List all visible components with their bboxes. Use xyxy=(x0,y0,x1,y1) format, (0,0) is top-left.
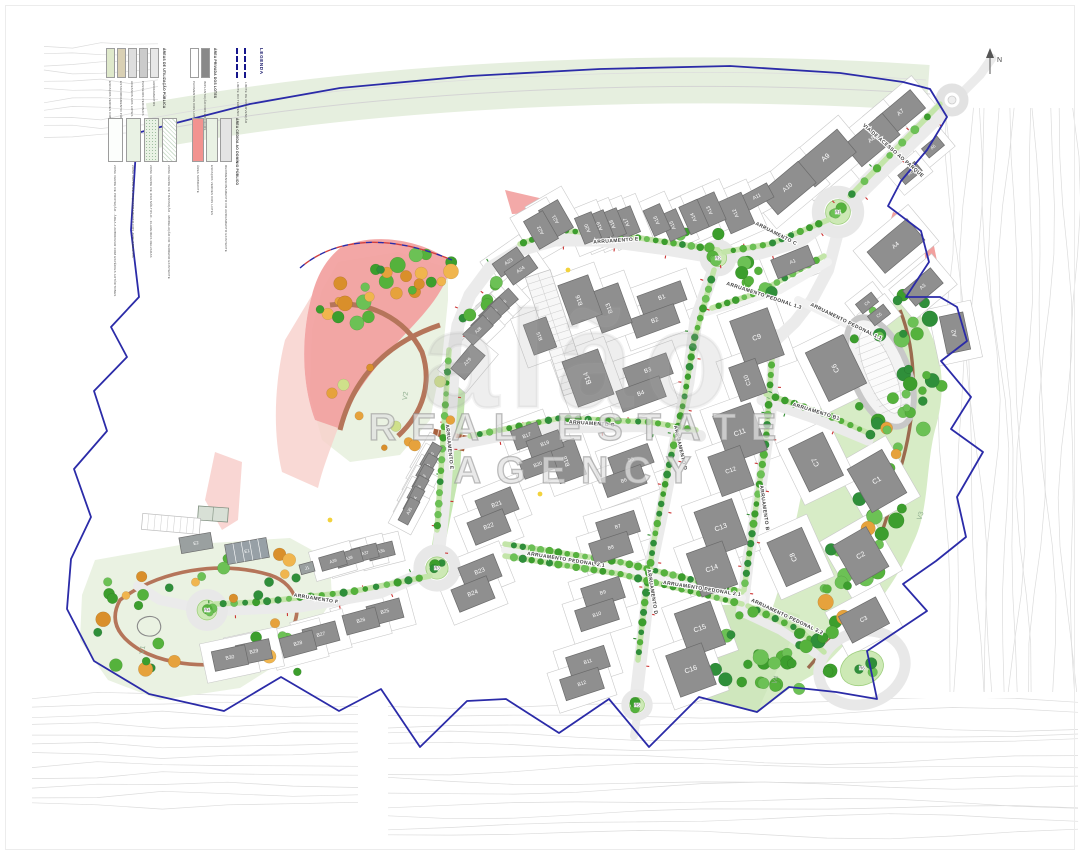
legend-boundary-label: LIMITE DO TERRENO xyxy=(236,82,240,116)
roundabout-label-R6: R6 xyxy=(859,666,865,671)
legend-item-label: ACESSOS AOS LOTES xyxy=(130,81,134,117)
legend: ESPAÇOS VERDES COMUNSESTACIONAMENTO PÚBL… xyxy=(86,40,296,255)
legend-swatch xyxy=(190,48,199,78)
legend-item-label: ÁREA SOBRANTE xyxy=(196,165,200,193)
parking-p2 xyxy=(141,513,200,534)
legend-item-label: ARRUAMENTOS xyxy=(152,81,156,106)
legend-swatch xyxy=(144,118,159,162)
legend-item-label: ZONA VERDE DE USO MÚLTIPLO - CLAREIRAS R… xyxy=(149,165,153,258)
sports-court xyxy=(198,506,229,522)
north-label: N xyxy=(997,57,1002,64)
legend-group-header: ÁREA PRIVADA DOS LOTES xyxy=(213,48,217,98)
legend-swatch xyxy=(106,48,115,78)
legend-swatch xyxy=(126,118,141,162)
road-spurN xyxy=(963,58,992,92)
legend-item-label: ZONA VERDE DE ENQUADRAMENTO DOS ARRUAMEN… xyxy=(131,165,135,258)
legend-swatch xyxy=(220,118,232,162)
legend-boundary-line xyxy=(236,48,238,78)
legend-swatch xyxy=(139,48,148,78)
legend-swatch xyxy=(128,48,137,78)
legend-swatch xyxy=(192,118,204,162)
legend-title: LEGENDA xyxy=(259,48,264,75)
legend-item-label: ESPAÇOS VERDES DOS LOTES xyxy=(210,165,214,215)
legend-swatch xyxy=(108,118,123,162)
legend-item-label: ZONA VERDE DE TRANSIÇÃO - MODELAÇÃO DO T… xyxy=(167,165,171,279)
legend-group-header: ÁREA CEDIDA AO DOMÍNIO PÚBLICO xyxy=(235,118,239,185)
legend-item-label: PAVIMENTOS DOS LOTES xyxy=(192,81,196,122)
legend-item-label: ZONA VERDE DE PROTEÇÃO - ÁREA A ARBORIZA… xyxy=(113,165,117,296)
legend-swatch xyxy=(117,48,126,78)
legend-swatch xyxy=(162,118,177,162)
legend-group-header: ÁREAS DE UTILIZAÇÃO PÚBLICA xyxy=(162,48,166,108)
roundabout-label-R2: R2 xyxy=(715,256,721,261)
legend-swatch xyxy=(206,118,218,162)
roundabout-label-R4: R4 xyxy=(204,608,210,613)
legend-boundary-label: LIMITE DE INTERVENÇÃO xyxy=(244,82,248,123)
masterplan-page: { "watermark": { "logo": "alão", "subtit… xyxy=(0,0,1080,855)
legend-swatch xyxy=(150,48,159,78)
legend-item-label: REDIMENSIONAMENTO DO ARRUAMENTO EXISTENT… xyxy=(224,165,228,252)
roundabout-label-R5: R5 xyxy=(634,703,640,708)
park-label-V3: V3 xyxy=(916,511,925,521)
roundabout-label-R1: R1 xyxy=(835,210,841,215)
legend-item-label: PASSEIOS PEDONAIS xyxy=(141,81,145,116)
roundabout-label-R3: R3 xyxy=(434,566,440,571)
legend-swatch xyxy=(201,48,210,78)
legend-boundary-line xyxy=(244,48,246,78)
park-label-V2: V2 xyxy=(402,391,410,401)
